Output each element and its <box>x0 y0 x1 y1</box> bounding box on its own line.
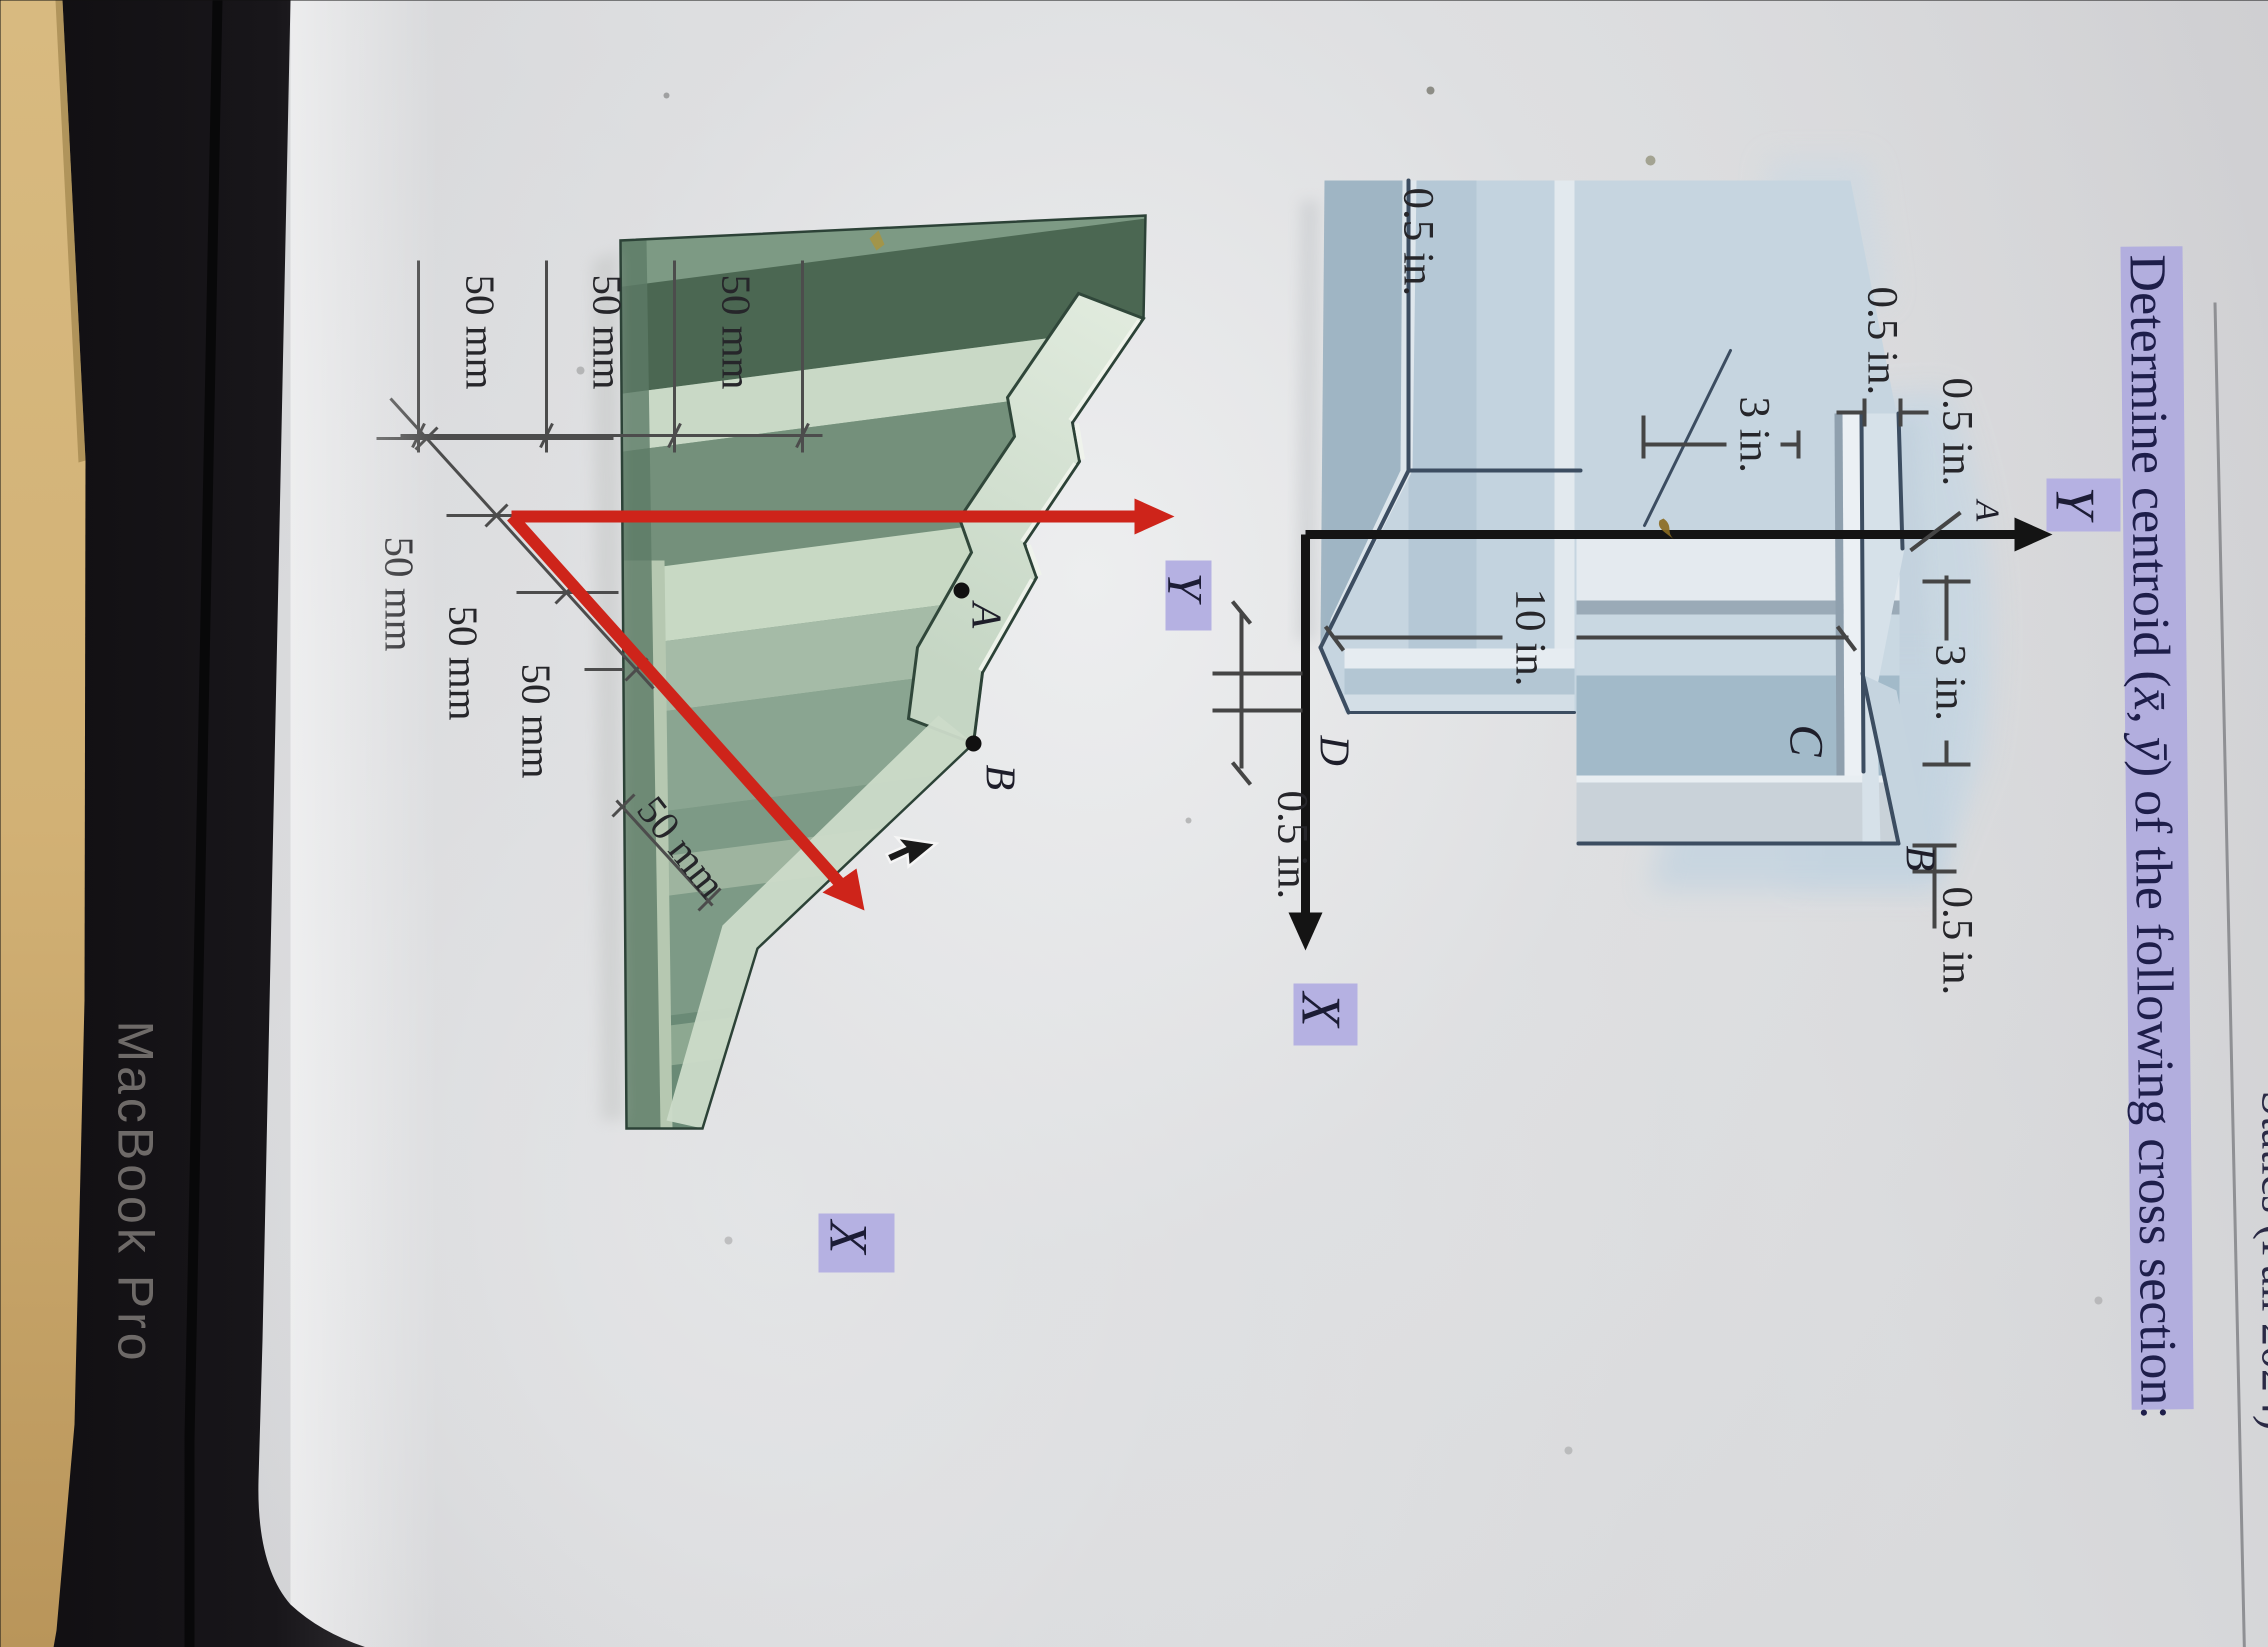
svg-text:3 in.: 3 in. <box>1926 644 1973 720</box>
svg-text:B: B <box>976 764 1022 790</box>
svg-text:Y: Y <box>2043 486 2105 523</box>
svg-text:3 in.: 3 in. <box>1730 396 1777 472</box>
svg-text:Y: Y <box>1157 572 1213 605</box>
svg-text:D: D <box>1310 734 1356 765</box>
svg-text:10 in.: 10 in. <box>1506 588 1553 686</box>
svg-text:X: X <box>1289 990 1351 1029</box>
svg-text:50 mm: 50 mm <box>584 274 630 389</box>
svg-text:50 mm: 50 mm <box>713 274 759 389</box>
svg-text:C: C <box>1779 724 1832 757</box>
svg-text:B: B <box>1896 845 1942 871</box>
svg-text:0.5 in.: 0.5 in. <box>1933 377 1980 486</box>
svg-text:50 mm: 50 mm <box>440 605 486 720</box>
svg-text:0.5 in.: 0.5 in. <box>1394 187 1441 296</box>
svg-text:A: A <box>1968 498 2005 521</box>
svg-text:X: X <box>818 1218 878 1255</box>
svg-text:0.5 in.: 0.5 in. <box>1933 886 1980 995</box>
svg-text:0.5 in.: 0.5 in. <box>1858 286 1905 395</box>
svg-text:0.5 in.: 0.5 in. <box>1268 790 1315 899</box>
svg-text:MacBook Pro: MacBook Pro <box>107 1020 163 1364</box>
svg-text:A: A <box>962 599 1008 628</box>
svg-text:50 mm: 50 mm <box>457 274 503 389</box>
svg-text:50 mm: 50 mm <box>513 663 559 778</box>
